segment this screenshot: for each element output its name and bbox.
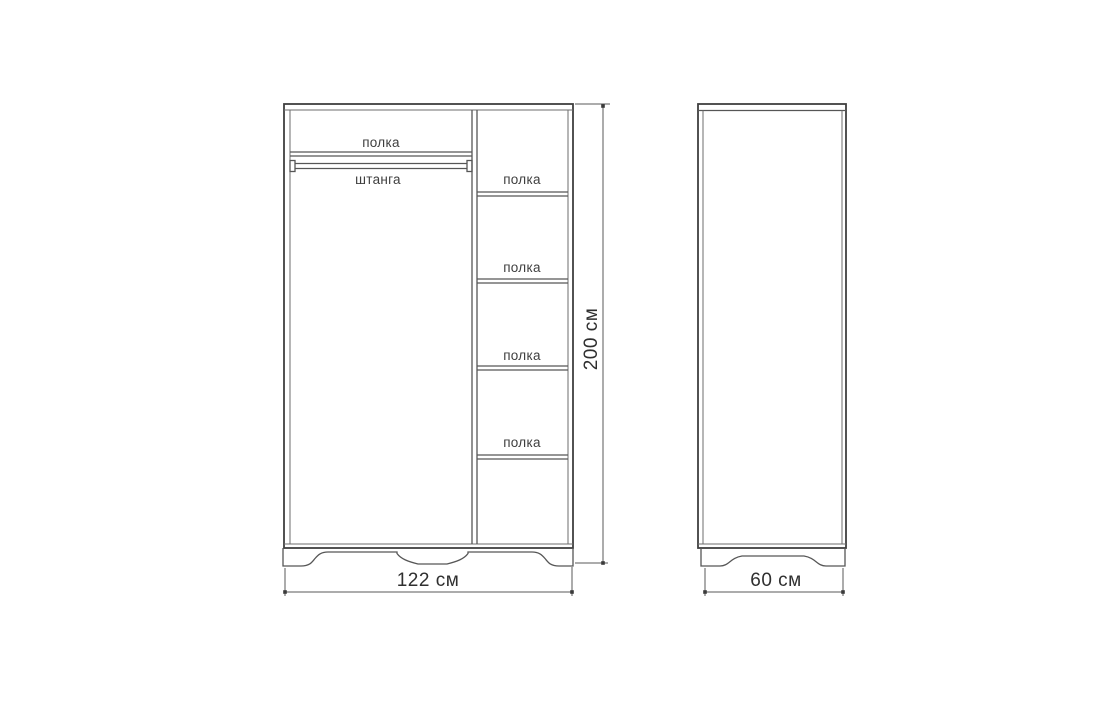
dimension-end-marker (601, 104, 605, 108)
drawing-canvas: полка штанга полка полка полка полк (0, 0, 1120, 717)
right-shelf-label-2: полка (503, 260, 541, 275)
right-shelf-label-4: полка (503, 435, 541, 450)
depth-dimension-label: 60 см (750, 570, 801, 591)
dimension-end-marker (841, 590, 845, 594)
dimension-end-marker (570, 590, 574, 594)
right-shelf-3: полка (477, 348, 568, 370)
dimension-end-marker (283, 590, 287, 594)
top-shelf-label: полка (362, 135, 400, 150)
front-view: полка штанга полка полка полка полк (283, 104, 610, 596)
right-shelf-4: полка (477, 435, 568, 459)
right-shelf-label-1: полка (503, 172, 541, 187)
height-dimension-label: 200 см (581, 308, 602, 371)
dimension-end-marker (703, 590, 707, 594)
side-plinth (701, 548, 845, 566)
wardrobe-dimension-diagram: полка штанга полка полка полка полк (0, 0, 1120, 717)
rod-end-cap-left (290, 161, 295, 172)
front-carcass-outline (284, 104, 573, 548)
right-shelf-2: полка (477, 260, 568, 283)
right-shelf-label-3: полка (503, 348, 541, 363)
depth-dimension: 60 см (703, 568, 845, 596)
side-view: 60 см (698, 104, 846, 596)
dimension-end-marker (601, 561, 605, 565)
rod-label: штанга (355, 172, 401, 187)
height-dimension: 200 см (575, 104, 610, 565)
width-dimension-label: 122 см (397, 570, 460, 591)
hanging-rod (290, 161, 472, 172)
right-shelf-1: полка (477, 172, 568, 196)
rod-end-cap-right (467, 161, 472, 172)
width-dimension: 122 см (283, 567, 574, 596)
side-carcass-outline (698, 104, 846, 548)
front-plinth (283, 548, 573, 566)
